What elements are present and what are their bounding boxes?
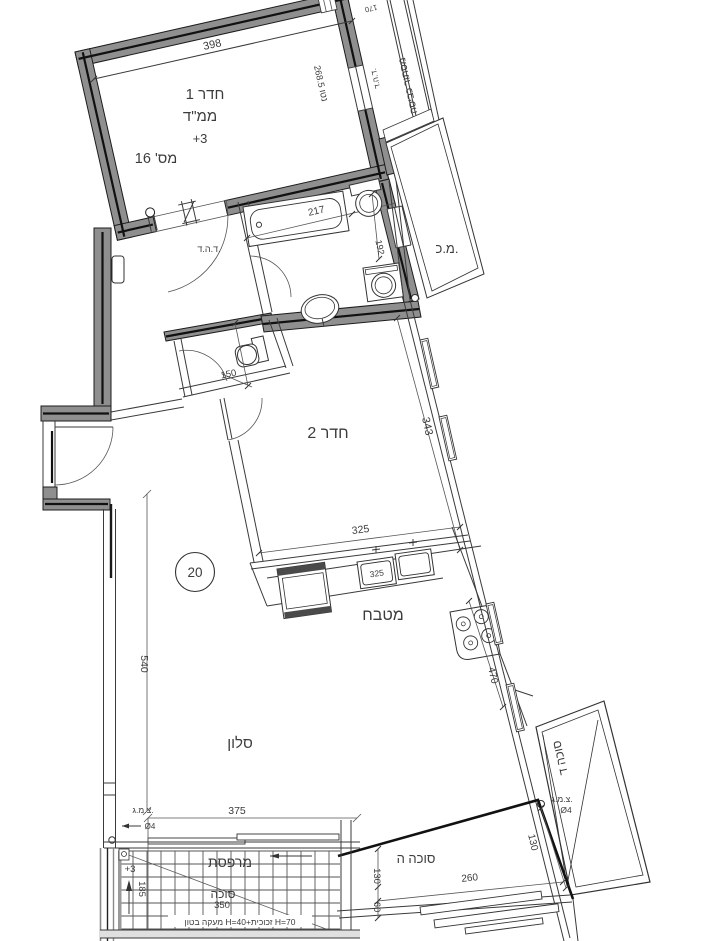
svg-text:Ø4: Ø4 <box>560 805 572 815</box>
svg-text:ממ"ד: ממ"ד <box>183 108 217 125</box>
svg-text:375: 375 <box>228 805 246 817</box>
svg-text:סוכה: סוכה <box>211 887 236 901</box>
svg-text:מרפסת: מרפסת <box>208 854 252 870</box>
svg-text:Ø4: Ø4 <box>145 822 156 831</box>
svg-text:מעקה בטון H=40+זכוכית H=70: מעקה בטון H=40+זכוכית H=70 <box>185 917 296 927</box>
svg-text:+3: +3 <box>125 864 136 875</box>
svg-text:+3: +3 <box>193 131 208 146</box>
svg-text:130: 130 <box>371 868 382 884</box>
svg-text:צ.מ.ג.: צ.מ.ג. <box>551 794 572 804</box>
svg-text:מ.כ.: מ.כ. <box>436 241 459 256</box>
svg-text:ד.ה.ד.: ד.ה.ד. <box>197 244 220 254</box>
svg-text:185: 185 <box>136 881 147 897</box>
svg-text:325: 325 <box>351 523 370 537</box>
svg-text:צ.מ.ג.: צ.מ.ג. <box>132 805 153 815</box>
svg-text:325: 325 <box>369 567 385 579</box>
svg-text:60: 60 <box>371 902 382 913</box>
svg-text:מס' 16: מס' 16 <box>135 151 177 167</box>
svg-text:חדר 2: חדר 2 <box>307 425 348 442</box>
svg-text:260: 260 <box>461 872 479 885</box>
svg-text:חדר 1: חדר 1 <box>186 86 225 103</box>
svg-text:סלון: סלון <box>227 735 253 752</box>
svg-text:540: 540 <box>138 655 150 673</box>
svg-text:20: 20 <box>187 565 202 580</box>
svg-text:סוכה ה: סוכה ה <box>397 851 436 866</box>
svg-text:מטבח: מטבח <box>362 607 404 624</box>
svg-text:350: 350 <box>214 900 230 911</box>
